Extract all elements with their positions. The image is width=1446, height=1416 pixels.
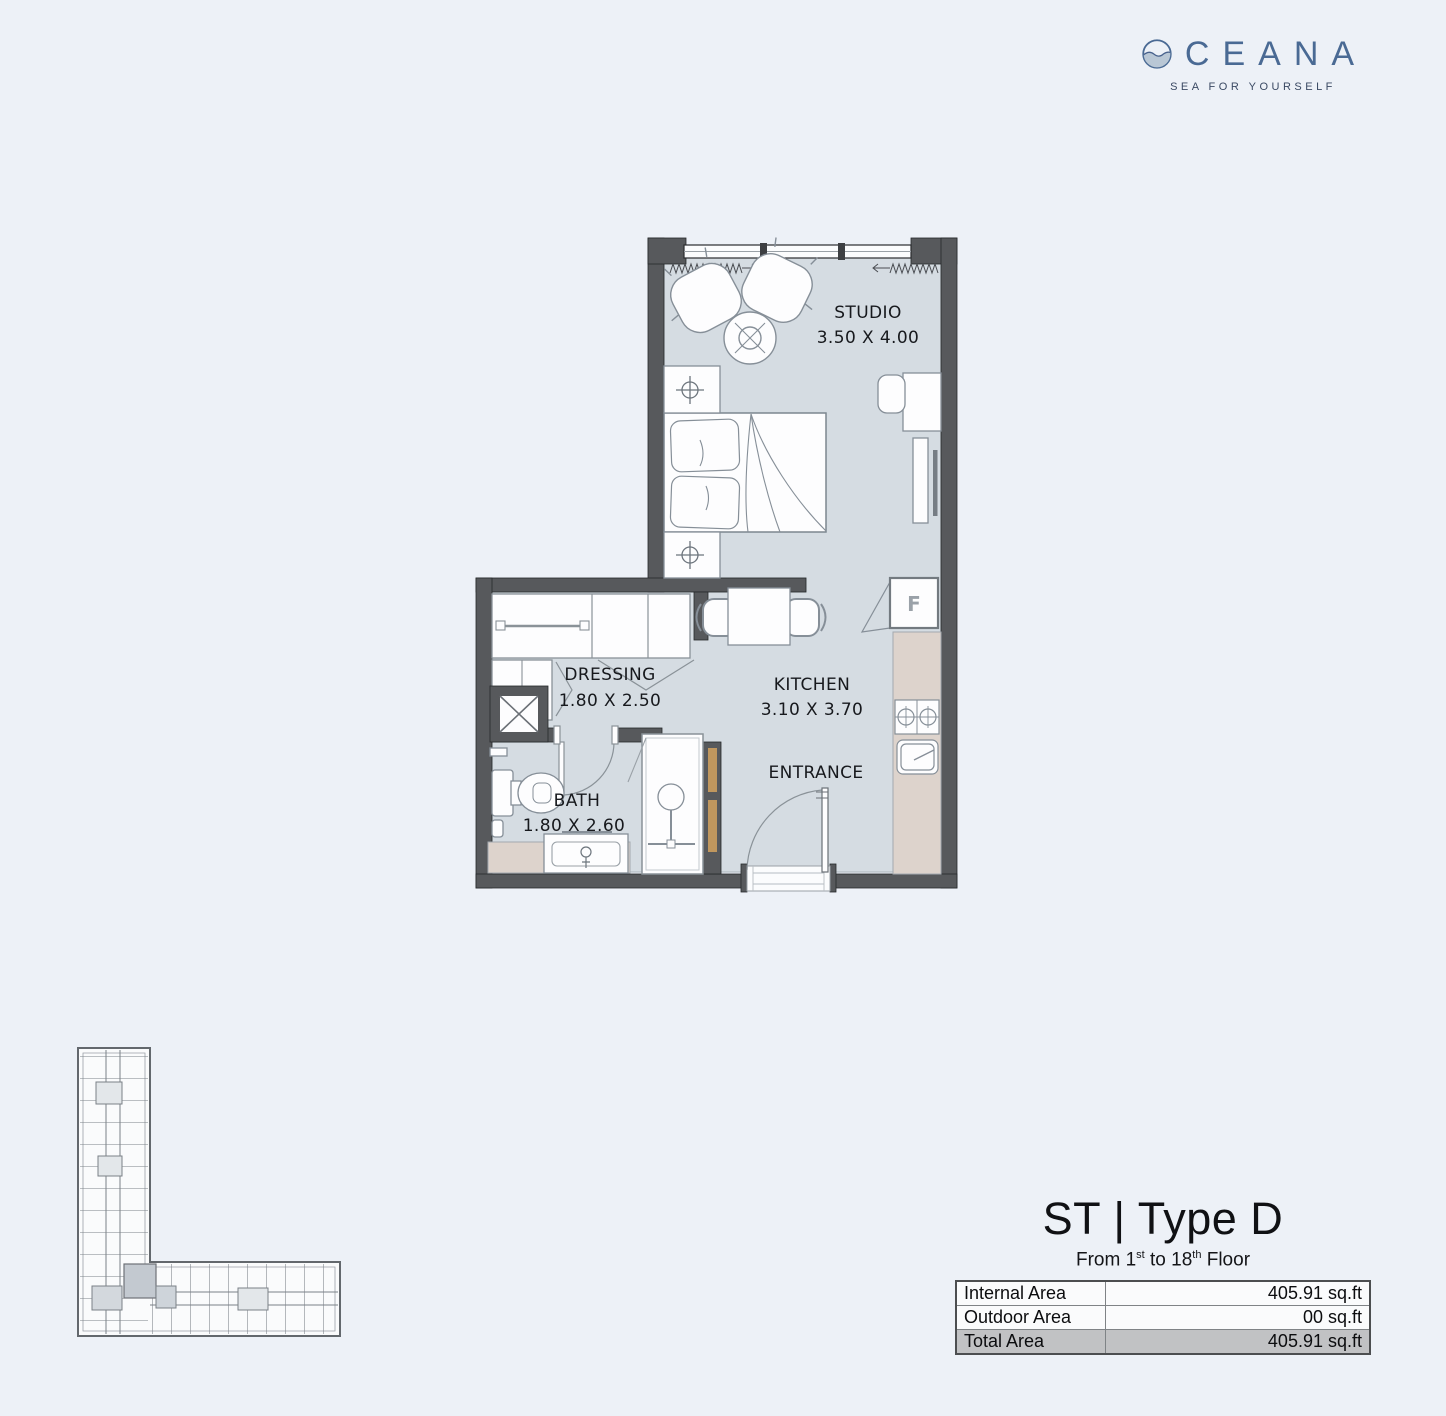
logo: CEANA SEA FOR YOURSELF	[1103, 36, 1403, 93]
table-row-total-area: Total Area 405.91 sq.ft	[956, 1330, 1370, 1355]
row-value: 405.91 sq.ft	[1105, 1281, 1370, 1306]
bath-dimensions: 1.80 X 2.60	[523, 816, 626, 836]
side-table	[724, 312, 776, 364]
entrance-label: ENTRANCE	[768, 763, 863, 783]
row-label: Internal Area	[956, 1281, 1105, 1306]
table-row-internal-area: Internal Area 405.91 sq.ft	[956, 1281, 1370, 1306]
unit-title: ST | Type D	[955, 1196, 1371, 1241]
logo-o-wave-icon	[1139, 36, 1175, 72]
key-plan-highlighted-unit	[124, 1264, 156, 1298]
kitchen-label: KITCHEN	[774, 675, 850, 695]
kitchen-dimensions: 3.10 X 3.70	[761, 700, 864, 720]
kitchen-sink	[897, 740, 938, 774]
row-value: 00 sq.ft	[1105, 1306, 1370, 1330]
floor-range: From 1st to 18th Floor	[955, 1249, 1371, 1271]
logo-wordmark: CEANA	[1103, 36, 1403, 72]
dressing-label: DRESSING	[564, 665, 655, 685]
floor-range-sup: st	[1136, 1249, 1145, 1261]
table-row-outdoor-area: Outdoor Area 00 sq.ft	[956, 1306, 1370, 1330]
page: F STUDIO 3.50 X 4.00 DRESSING 1.80 X 2.5…	[0, 0, 1446, 1416]
studio-label: STUDIO	[834, 303, 902, 323]
floor-range-part: Floor	[1201, 1249, 1250, 1270]
key-plan	[78, 1048, 340, 1336]
tv-unit	[913, 438, 938, 523]
bed	[664, 413, 826, 532]
logo-letters: CEANA	[1185, 37, 1367, 71]
unit-info: ST | Type D From 1st to 18th Floor Inter…	[955, 1196, 1371, 1355]
row-value: 405.91 sq.ft	[1105, 1330, 1370, 1355]
nightstand-top	[664, 366, 720, 413]
row-label: Total Area	[956, 1330, 1105, 1355]
stove	[895, 700, 939, 734]
studio-dimensions: 3.50 X 4.00	[817, 328, 920, 348]
studio-window	[684, 243, 911, 260]
logo-tagline: SEA FOR YOURSELF	[1103, 81, 1403, 93]
floor-range-part: From 1	[1076, 1249, 1136, 1270]
row-label: Outdoor Area	[956, 1306, 1105, 1330]
floor-range-part: to 18	[1145, 1249, 1193, 1270]
entry-wall-wood-accents	[708, 748, 717, 852]
area-table: Internal Area 405.91 sq.ft Outdoor Area …	[955, 1280, 1371, 1355]
fridge-label: F	[907, 592, 921, 616]
bath-label: BATH	[554, 791, 601, 811]
nightstand-bottom	[664, 532, 720, 578]
dressing-dimensions: 1.80 X 2.50	[559, 691, 662, 711]
shaft	[490, 686, 548, 742]
